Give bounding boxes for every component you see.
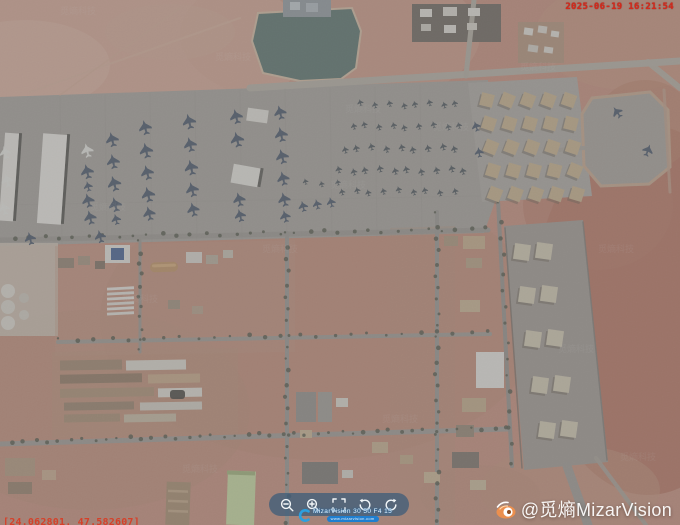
brand-text: MizarVision 30 50 F4 15 — [313, 508, 392, 515]
svg-text:觅熵科技: 觅熵科技 — [215, 51, 251, 63]
zoom-out-icon — [280, 498, 294, 512]
svg-text:觅熵科技: 觅熵科技 — [90, 201, 126, 213]
svg-text:觅熵科技: 觅熵科技 — [262, 243, 298, 255]
mizarvision-logo-icon — [297, 508, 311, 523]
svg-text:觅熵科技: 觅熵科技 — [520, 61, 556, 73]
coordinates-readout: [24.062801, 47.582607] — [3, 517, 140, 525]
weibo-watermark: @觅熵MizarVision — [495, 496, 672, 522]
capture-timestamp: 2025-06-19 16:21:54 — [565, 2, 674, 12]
weibo-icon — [495, 500, 517, 519]
weibo-handle: @觅熵MizarVision — [521, 496, 672, 522]
svg-text:觅熵科技: 觅熵科技 — [382, 413, 418, 425]
svg-text:觅熵科技: 觅熵科技 — [598, 243, 634, 255]
svg-text:觅熵科技: 觅熵科技 — [330, 179, 366, 191]
svg-text:觅熵科技: 觅熵科技 — [122, 293, 158, 305]
brand-subtext: www.mizarvision.com — [327, 516, 379, 522]
zoom-out-button[interactable] — [276, 495, 298, 515]
mizarvision-logo-badge: MizarVision 30 50 F4 15 www.mizarvision.… — [297, 508, 392, 523]
svg-text:觅熵科技: 觅熵科技 — [345, 103, 381, 115]
svg-text:觅熵科技: 觅熵科技 — [60, 5, 96, 17]
svg-text:觅熵科技: 觅熵科技 — [433, 121, 469, 133]
satellite-viewer-screenshot: 觅熵科技觅熵科技觅熵科技觅熵科技觅熵科技觅熵科技觅熵科技觅熵科技觅熵科技觅熵科技… — [0, 0, 680, 525]
svg-text:觅熵科技: 觅熵科技 — [182, 463, 218, 475]
satellite-image: 觅熵科技觅熵科技觅熵科技觅熵科技觅熵科技觅熵科技觅熵科技觅熵科技觅熵科技觅熵科技… — [0, 0, 680, 525]
svg-text:觅熵科技: 觅熵科技 — [558, 343, 594, 355]
svg-text:觅熵科技: 觅熵科技 — [620, 451, 656, 463]
